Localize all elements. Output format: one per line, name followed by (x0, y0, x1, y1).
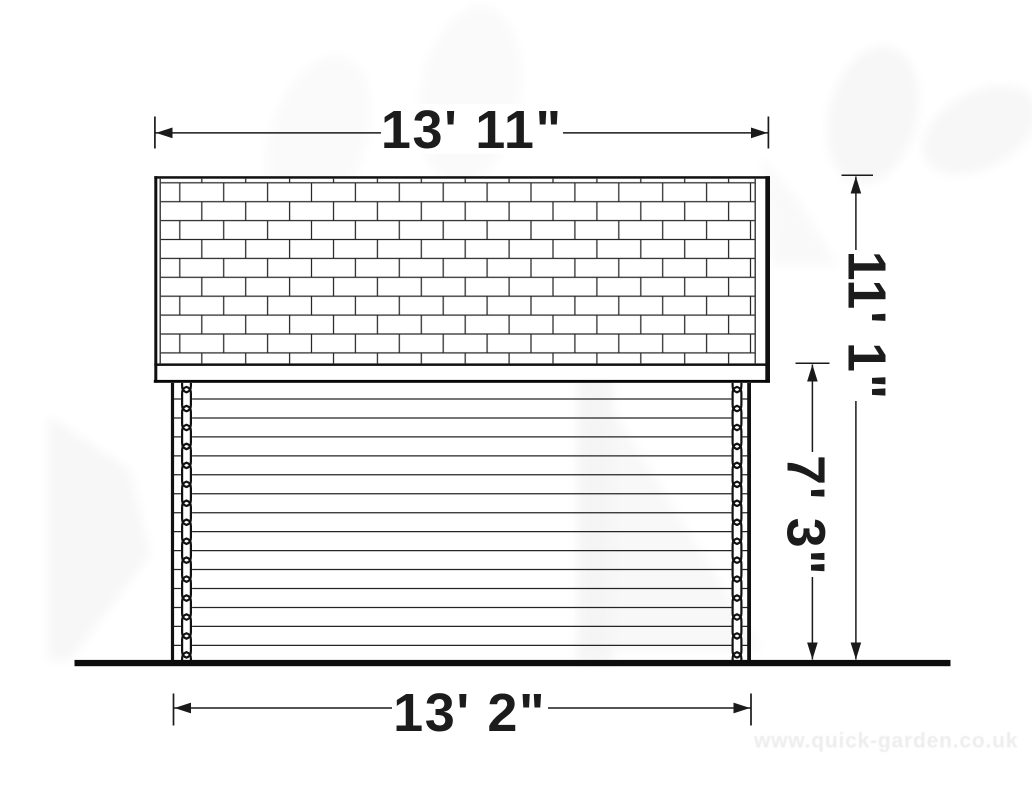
svg-text:13' 2": 13' 2" (393, 683, 546, 743)
svg-text:www.quick-garden.co.uk: www.quick-garden.co.uk (753, 730, 1018, 753)
svg-text:11' 1": 11' 1" (837, 251, 897, 401)
svg-text:13' 11": 13' 11" (381, 100, 563, 160)
svg-text:7' 3": 7' 3" (776, 455, 836, 577)
